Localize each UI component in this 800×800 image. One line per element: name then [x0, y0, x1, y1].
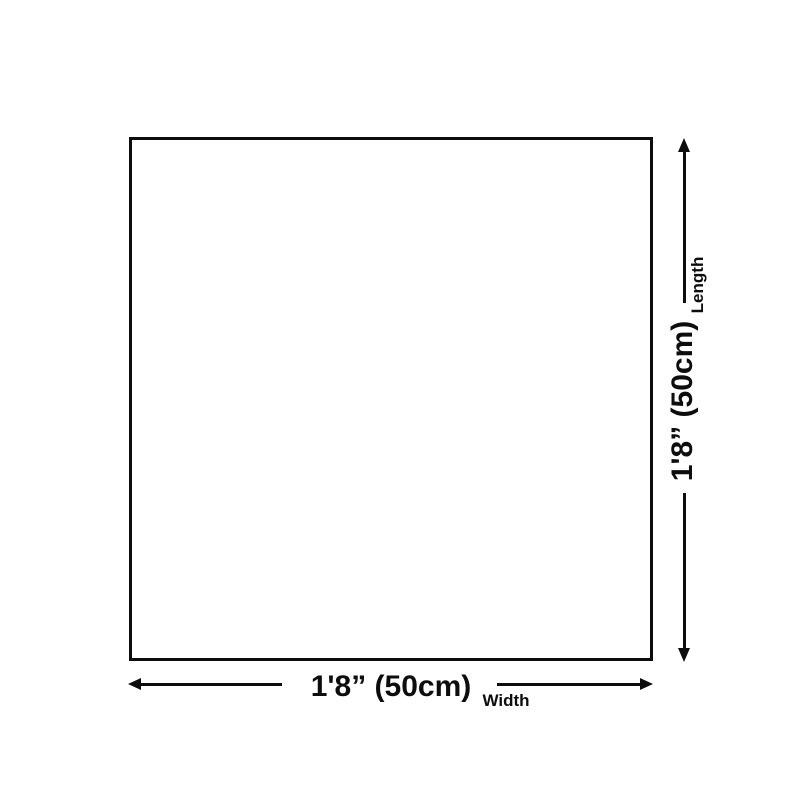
arrow-down-icon: [678, 648, 690, 662]
length-arrow-lower-shaft: [683, 493, 686, 649]
width-axis-label: Width: [456, 691, 556, 711]
product-dimension-diagram: Length 1'8” (50cm) 1'8” (50cm) Width: [0, 0, 800, 800]
arrow-right-icon: [640, 678, 653, 690]
width-arrow-right-shaft: [497, 683, 641, 686]
product-outline: [129, 137, 653, 661]
